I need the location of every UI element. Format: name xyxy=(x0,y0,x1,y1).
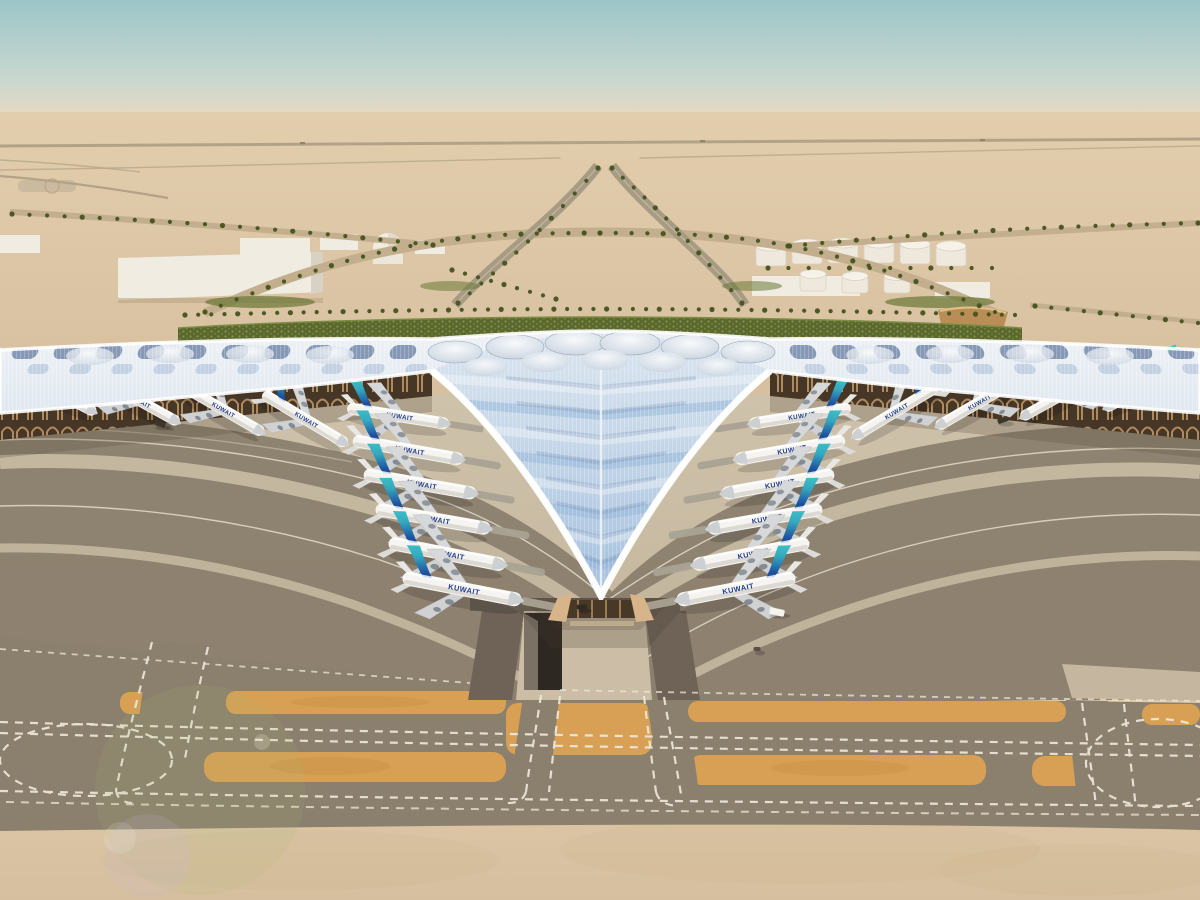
airport-rendering: KUWAIT xyxy=(0,0,1200,900)
rendered-scene: KUWAIT xyxy=(0,0,1200,900)
